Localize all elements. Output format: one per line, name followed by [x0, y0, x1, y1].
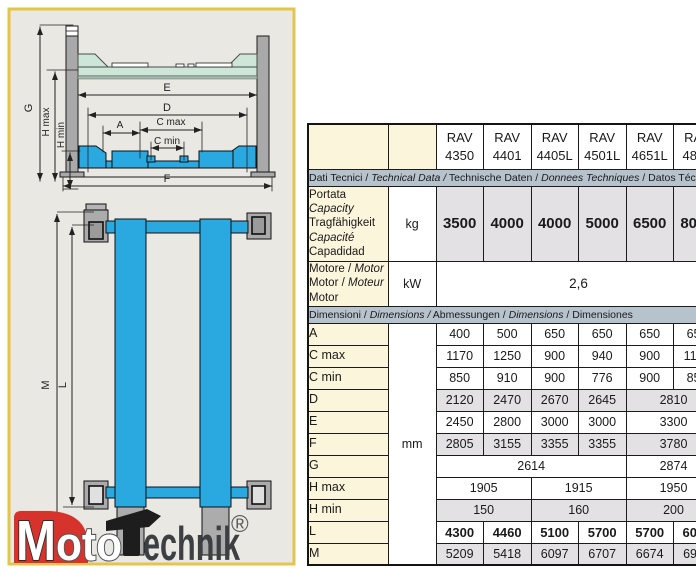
- dim-value: 850: [436, 367, 483, 389]
- dim-value: 1150: [673, 345, 696, 367]
- capacity-value: 4000: [531, 186, 578, 261]
- capacity-value: 5000: [578, 186, 626, 261]
- motor-label: Motore / MotorMotor / MoteurMotor: [308, 261, 388, 306]
- model-header-cell: RAV4651L: [626, 124, 673, 169]
- dim-value: 3000: [578, 411, 626, 433]
- dim-row-label: E: [308, 411, 388, 433]
- table-unit-blank: [388, 124, 436, 169]
- dim-value: 5100: [531, 521, 578, 543]
- dim-value: 500: [483, 323, 531, 345]
- dim-value: 1950: [626, 477, 696, 499]
- dim-value: 2614: [436, 455, 626, 477]
- dim-row-label: L: [308, 521, 388, 543]
- left-post: [66, 36, 78, 175]
- dim-value: 4460: [483, 521, 531, 543]
- dim-value: 150: [436, 499, 531, 521]
- dim-value: 650: [626, 323, 673, 345]
- dim-value: 3355: [578, 433, 626, 455]
- capacity-value: 3500: [436, 186, 483, 261]
- dim-value: 2645: [578, 389, 626, 411]
- dim-value: 2874: [626, 455, 696, 477]
- table-corner-blank: [308, 124, 388, 169]
- dim-value: 6097: [531, 543, 578, 565]
- dim-value: 900: [626, 367, 673, 389]
- dim-value: 776: [578, 367, 626, 389]
- spec-table: RAV4350RAV4401RAV4405LRAV4501LRAV4651LRA…: [307, 123, 696, 566]
- dim-E-label: E: [163, 82, 170, 94]
- dim-value: 5700: [626, 521, 673, 543]
- dim-value: 400: [436, 323, 483, 345]
- dim-value: 160: [531, 499, 626, 521]
- dim-unit: mm: [388, 323, 436, 565]
- dim-value: 940: [578, 345, 626, 367]
- dim-value: 6000: [673, 521, 696, 543]
- left-post-base: [60, 172, 84, 177]
- dim-row-label: G: [308, 455, 388, 477]
- dim-value: 5700: [578, 521, 626, 543]
- dim-value: 650: [673, 323, 696, 345]
- capacity-label: PortataCapacityTragfähigkeitCapacitéCapa…: [308, 186, 388, 261]
- logo-registered-mark: ®: [231, 511, 249, 538]
- dim-value: 2670: [531, 389, 578, 411]
- dim-value: 2805: [436, 433, 483, 455]
- capacity-value: 6500: [626, 186, 673, 261]
- dim-value: 3355: [531, 433, 578, 455]
- motor-unit: kW: [388, 261, 436, 306]
- logo-technik: echnik: [143, 517, 241, 570]
- dim-L-label: L: [57, 382, 69, 388]
- dim-row-label: A: [308, 323, 388, 345]
- dim-value: 3000: [531, 411, 578, 433]
- dim-row-label: M: [308, 543, 388, 565]
- runway-right: [200, 219, 231, 507]
- model-header-cell: RAV4401: [483, 124, 531, 169]
- dim-A-label: A: [117, 120, 124, 131]
- model-header-cell: RAV4800: [673, 124, 696, 169]
- dim-value: 650: [531, 323, 578, 345]
- dim-value: 6707: [578, 543, 626, 565]
- dim-value: 6674: [626, 543, 673, 565]
- dim-value: 1905: [436, 477, 531, 499]
- model-header-cell: RAV4405L: [531, 124, 578, 169]
- dim-Hmax-label: H max: [41, 108, 52, 137]
- right-post: [257, 36, 269, 175]
- dim-row-label: H min: [308, 499, 388, 521]
- dim-F-label: F: [164, 173, 171, 185]
- dim-row-label: C min: [308, 367, 388, 389]
- right-post-base: [251, 172, 275, 177]
- dim-value: 200: [626, 499, 696, 521]
- dim-G-label: G: [23, 104, 35, 113]
- section-tech-header: Dati Tecnici / Technical Data / Technisc…: [308, 169, 696, 186]
- dim-D-label: D: [163, 102, 171, 114]
- dim-value: 5209: [436, 543, 483, 565]
- dim-value: 1170: [436, 345, 483, 367]
- dim-row-label: H max: [308, 477, 388, 499]
- dim-value: 2800: [483, 411, 531, 433]
- dim-value: 3155: [483, 433, 531, 455]
- dim-M-label: M: [40, 380, 52, 389]
- dim-value: 1250: [483, 345, 531, 367]
- dim-value: 4300: [436, 521, 483, 543]
- model-header-cell: RAV4501L: [578, 124, 626, 169]
- dim-row-label: F: [308, 433, 388, 455]
- dim-Cmin-label: C min: [154, 136, 180, 147]
- dim-Cmax-label: C max: [157, 117, 186, 128]
- dim-value: 3780: [626, 433, 696, 455]
- dim-value: 3300: [626, 411, 696, 433]
- dim-row-label: C max: [308, 345, 388, 367]
- dim-value: 910: [483, 367, 531, 389]
- dim-value: 650: [578, 323, 626, 345]
- dim-value: 900: [531, 367, 578, 389]
- dim-value: 2120: [436, 389, 483, 411]
- section-dim-header: Dimensioni / Dimensions / Abmessungen / …: [308, 306, 696, 323]
- dim-value: 2470: [483, 389, 531, 411]
- lift-diagram: G H max H min E D A C max C min F: [0, 0, 300, 573]
- dim-value: 900: [626, 345, 673, 367]
- motor-value: 2,6: [436, 261, 696, 306]
- dim-value: 1915: [531, 477, 626, 499]
- model-header-cell: RAV4350: [436, 124, 483, 169]
- dim-value: 6974: [673, 543, 696, 565]
- dim-value: 850: [673, 367, 696, 389]
- capacity-value: 8000: [673, 186, 696, 261]
- capacity-value: 4000: [483, 186, 531, 261]
- dim-value: 2810: [626, 389, 696, 411]
- dim-Hmin-label: H min: [56, 122, 67, 148]
- runway-left: [115, 219, 146, 507]
- dim-value: 5418: [483, 543, 531, 565]
- dim-value: 900: [531, 345, 578, 367]
- capacity-unit: kg: [388, 186, 436, 261]
- logo-m: M: [16, 509, 56, 573]
- datasheet-page: G H max H min E D A C max C min F: [0, 0, 696, 573]
- dim-row-label: D: [308, 389, 388, 411]
- dim-value: 2450: [436, 411, 483, 433]
